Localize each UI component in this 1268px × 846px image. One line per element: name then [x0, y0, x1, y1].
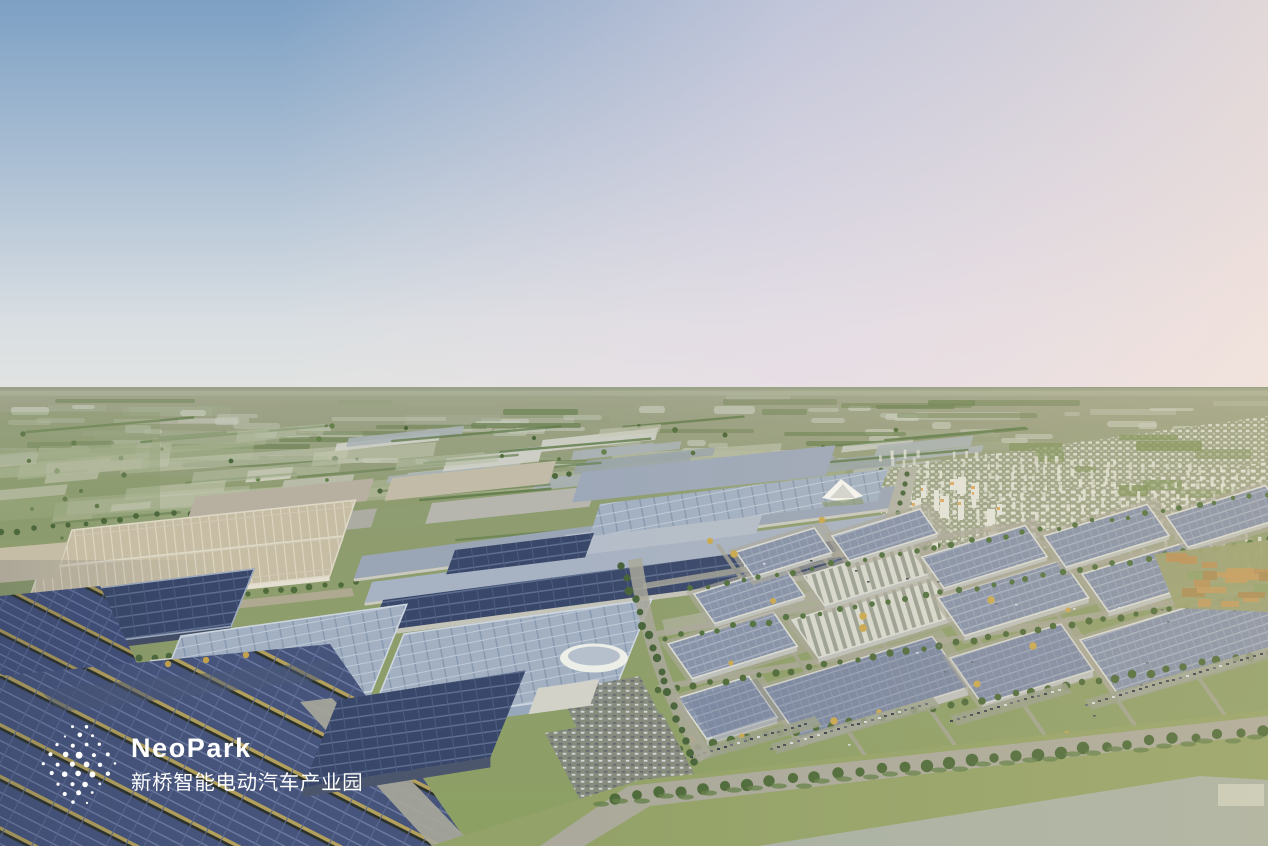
svg-text:NeoPark: NeoPark: [131, 733, 252, 763]
